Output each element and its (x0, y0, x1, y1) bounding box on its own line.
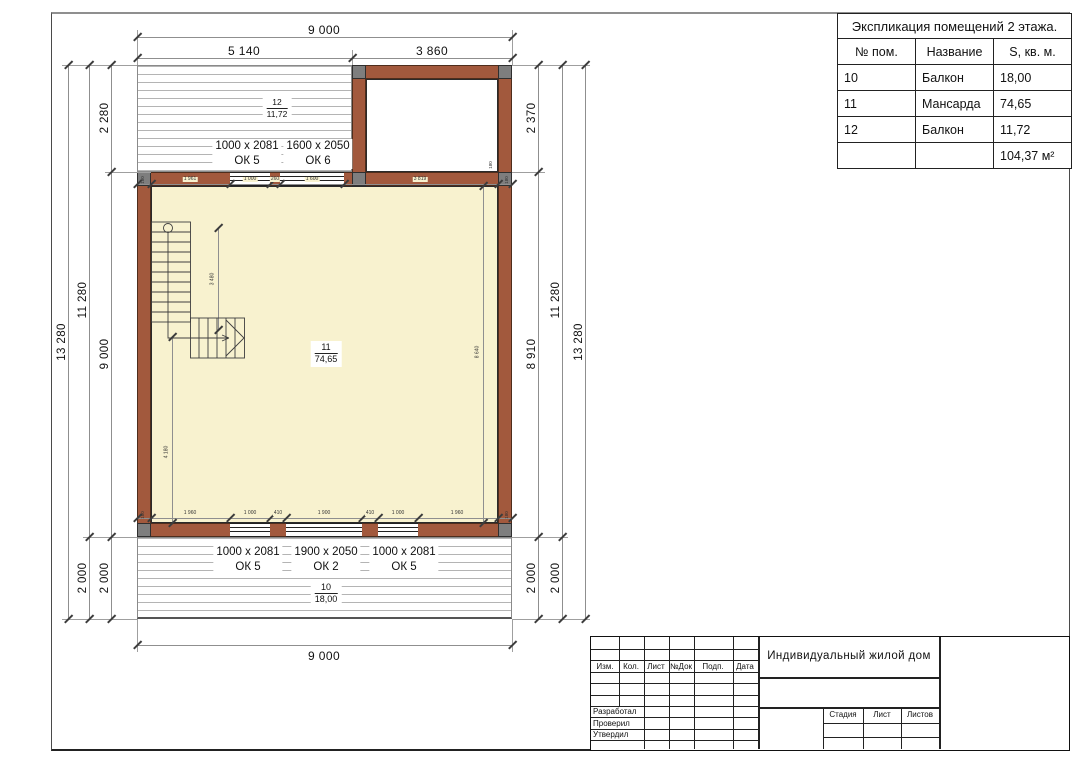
dim-wall-thickness: 180 (489, 161, 494, 169)
dim-right-inner-top: 2 370 (526, 103, 538, 134)
window-size: 1000 x 2081 (216, 545, 279, 560)
stamp-line (823, 737, 939, 738)
extension-line (62, 65, 137, 66)
project-name: Индивидуальный жилой дом (767, 650, 931, 662)
dim-top-left: 5 140 (228, 44, 260, 58)
window-mark: ОК 5 (372, 560, 435, 575)
room-num-cell: 11 (838, 91, 916, 117)
dim-chain: 1 000 (391, 511, 406, 516)
window-mark: ОК 5 (215, 154, 278, 169)
stamp-line (644, 637, 645, 749)
window-size: 1900 x 2050 (294, 545, 357, 560)
stamp-stage: Стадия (829, 711, 856, 719)
dimension-line (137, 518, 512, 519)
dim-right-mid-lower: 2 000 (550, 563, 562, 594)
dim-chain: 1 960 (183, 511, 198, 516)
explication-row: 11 Мансарда 74,65 (838, 91, 1072, 117)
stamp-row-razrabotal: Разработал (593, 708, 637, 716)
room-area-cell: 18,00 (994, 65, 1072, 91)
window-mark: ОК 6 (286, 154, 349, 169)
dimension-line (352, 58, 512, 59)
stamp-line (823, 707, 824, 749)
dim-right-inner-mid: 8 910 (526, 339, 538, 370)
room-name-cell: Мансарда (916, 91, 994, 117)
extension-line (512, 65, 590, 66)
explication-header-name: Название (916, 39, 994, 65)
stamp-col-list: Лист (647, 663, 664, 671)
stamp-line (591, 717, 758, 718)
dim-left-inner-bottom: 2 000 (99, 563, 111, 594)
dim-chain: 410 (273, 511, 283, 516)
room-name-cell: Балкон (916, 117, 994, 143)
stair-start-symbol (164, 224, 173, 233)
room-label-balcony-bottom: 10 18,00 (311, 581, 342, 607)
dim-left-inner-mid: 9 000 (99, 339, 111, 370)
stamp-line (733, 637, 734, 749)
dimension-line (585, 65, 586, 619)
dim-right-inner-bottom: 2 000 (526, 563, 538, 594)
stamp-line (901, 707, 902, 749)
stamp-line (823, 723, 939, 724)
extension-line (512, 619, 513, 652)
dim-chain: 1 000 (243, 177, 258, 182)
stamp-line (669, 637, 670, 749)
dimension-line (137, 37, 512, 38)
stamp-line (939, 637, 941, 749)
window-label-ok5-top: 1000 x 2081 ОК 5 (212, 139, 281, 169)
dim-chain: 180 (141, 176, 146, 184)
window-size: 1600 x 2050 (286, 139, 349, 154)
stamp-sheets: Листов (907, 711, 933, 719)
dim-left-inner-top: 2 280 (99, 103, 111, 134)
dimension-line (137, 645, 512, 646)
stamp-col-data: Дата (736, 663, 754, 671)
dim-left-mid-upper: 11 280 (77, 282, 89, 319)
drawing-sheet: 9 000 5 140 3 860 9 000 13 280 11 280 2 … (0, 0, 1080, 764)
window-size: 1000 x 2081 (215, 139, 278, 154)
room-number: 10 (315, 582, 338, 594)
stamp-line (694, 637, 695, 749)
room-area-cell: 74,65 (994, 91, 1072, 117)
dim-chain: 1 900 (317, 511, 332, 516)
extension-line (512, 619, 590, 620)
explication-title: Экспликация помещений 2 этажа. (838, 14, 1072, 39)
dim-left-outer: 13 280 (56, 323, 68, 361)
stamp-col-kol: Кол. (623, 663, 639, 671)
window-label-ok2-bottom: 1900 x 2050 ОК 2 (291, 545, 360, 575)
explication-table: Экспликация помещений 2 этажа. № пом. На… (837, 13, 1072, 169)
stamp-line (758, 637, 760, 749)
stamp-sheet: Лист (873, 711, 890, 719)
extension-line (137, 619, 138, 652)
dim-right-interior: 8 640 (476, 346, 481, 359)
stamp-line (758, 677, 939, 679)
stamp-line (591, 695, 758, 696)
room-label-balcony-top: 12 11,72 (263, 96, 292, 120)
stamp-line (591, 649, 758, 650)
room-num-cell: 10 (838, 65, 916, 91)
stamp-line (863, 707, 864, 749)
window-label-ok6-top: 1600 x 2050 ОК 6 (283, 139, 352, 169)
room-number: 12 (267, 97, 288, 109)
dim-right-outer: 13 280 (573, 323, 585, 361)
dim-chain: 180 (505, 176, 510, 184)
window-size: 1000 x 2081 (372, 545, 435, 560)
dim-chain: 180 (141, 511, 146, 519)
dimension-line (137, 184, 512, 185)
room-area-cell: 11,72 (994, 117, 1072, 143)
stair-walk-line (168, 233, 229, 342)
stamp-col-izm: Изм. (596, 663, 613, 671)
stamp-line (591, 683, 758, 684)
room-area: 74,65 (315, 354, 338, 364)
dim-left-mid-lower: 2 000 (77, 563, 89, 594)
stamp-row-proveril: Проверил (593, 720, 630, 728)
explication-total-row: 104,37 м² (838, 143, 1072, 169)
room-number: 11 (315, 342, 338, 354)
stamp-line (758, 707, 939, 709)
dim-chain: 260 (270, 177, 280, 182)
explication-row: 12 Балкон 11,72 (838, 117, 1072, 143)
dim-top-total: 9 000 (308, 23, 340, 37)
stamp-line (591, 672, 758, 673)
dim-top-right: 3 860 (416, 44, 448, 58)
window-mark: ОК 5 (216, 560, 279, 575)
room-label-mansarda: 11 74,65 (311, 341, 342, 367)
dimension-line (172, 337, 173, 523)
room-name-cell: Балкон (916, 65, 994, 91)
empty-cell (916, 143, 994, 169)
room-area: 11,72 (267, 109, 288, 119)
room-area: 18,00 (315, 594, 338, 604)
dim-left-interior: 4 180 (165, 446, 170, 459)
dim-chain: 180 (505, 511, 510, 519)
empty-cell (838, 143, 916, 169)
title-block: Изм. Кол. Лист №Док Подп. Дата Разработа… (590, 636, 1070, 751)
dim-chain: 410 (365, 511, 375, 516)
explication-header-num: № пом. (838, 39, 916, 65)
dimension-line (483, 186, 484, 523)
room-num-cell: 12 (838, 117, 916, 143)
staircase (151, 218, 251, 363)
window-mark: ОК 2 (294, 560, 357, 575)
dimension-line (137, 58, 352, 59)
dimension-line (68, 65, 69, 619)
explication-row: 10 Балкон 18,00 (838, 65, 1072, 91)
dim-bottom-total: 9 000 (308, 649, 340, 663)
stamp-col-ndok: №Док (670, 663, 692, 671)
stamp-line (591, 660, 758, 661)
explication-header-area: S, кв. м. (994, 39, 1072, 65)
dim-chain: 1 000 (243, 511, 258, 516)
total-area-cell: 104,37 м² (994, 143, 1072, 169)
dim-chain: 1 961 (183, 177, 198, 182)
window-label-ok5-bottom-left: 1000 x 2081 ОК 5 (213, 545, 282, 575)
extension-line (512, 172, 545, 173)
dim-stair-height: 3 480 (211, 273, 216, 286)
dim-chain: 3 819 (413, 177, 428, 182)
stamp-line (591, 740, 758, 741)
window-label-ok5-bottom-right: 1000 x 2081 ОК 5 (369, 545, 438, 575)
extension-line (62, 619, 137, 620)
stamp-col-podp: Подп. (702, 663, 723, 671)
dim-right-mid-upper: 11 280 (550, 282, 562, 319)
dim-chain: 1 600 (305, 177, 320, 182)
dim-chain: 1 960 (450, 511, 465, 516)
stamp-row-utverdil: Утвердил (593, 731, 628, 739)
